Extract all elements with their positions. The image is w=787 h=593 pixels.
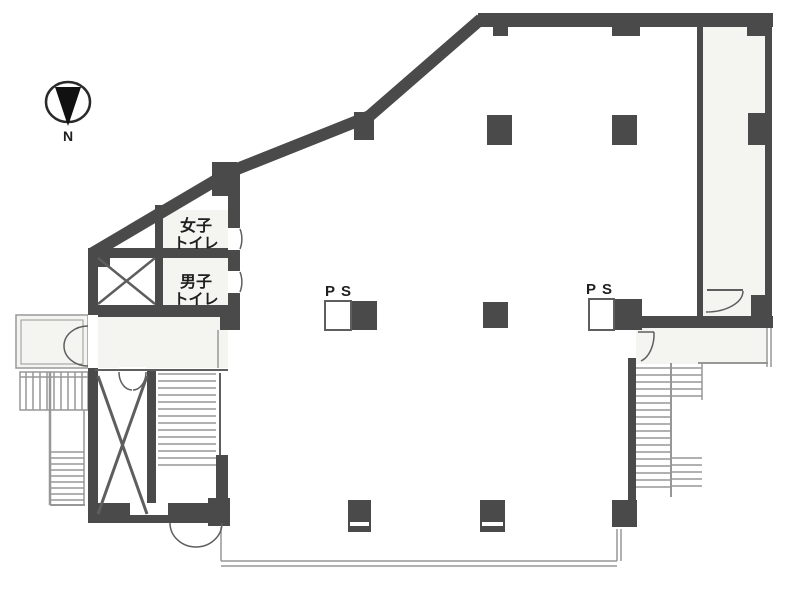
ps-left-white-half xyxy=(325,301,351,330)
stair-hall-corner-column xyxy=(208,498,230,526)
womens-toilet-door-opening xyxy=(228,228,240,250)
ps-right-white-half xyxy=(589,299,614,330)
compass-north-label: N xyxy=(63,128,73,144)
exit-door-leaf-left xyxy=(170,523,196,547)
ps-right-label: PS xyxy=(586,281,618,298)
diagonal-wall-upper xyxy=(366,19,481,119)
right-stair-right-run-treads xyxy=(672,368,702,486)
right-wall-column-upper xyxy=(748,113,772,145)
landing-door-opening xyxy=(88,315,98,368)
right-stair-landing-floor xyxy=(636,328,766,364)
south-wall-notch xyxy=(130,503,168,515)
exterior-landing-floor xyxy=(17,316,87,367)
exterior-stair-lower-treads xyxy=(50,452,84,500)
exit-door-leaf-right xyxy=(196,523,222,547)
diagonal-walls xyxy=(91,19,481,254)
right-stair-left-run-treads xyxy=(636,368,670,487)
hall-column-top-left xyxy=(487,115,512,145)
hall-column-bottom-middle xyxy=(480,500,505,532)
womens-toilet-label-line1: 女子 xyxy=(180,216,212,235)
ps-left-label: PS xyxy=(325,283,357,300)
stair-east-wall-lower xyxy=(216,455,228,505)
womens-toilet-door-swing xyxy=(240,229,242,249)
north-compass: N xyxy=(46,82,90,144)
elevator-shaft-east-wall xyxy=(147,371,156,518)
diagonal-bend-column xyxy=(354,112,374,140)
hall-column-bottom-left xyxy=(348,500,371,532)
right-room-floor xyxy=(703,27,765,316)
diagonal-wall-middle xyxy=(232,116,370,171)
right-stair-west-wall xyxy=(628,358,636,503)
right-room-divider-wall xyxy=(697,27,703,318)
elevator-door-leaf-left xyxy=(119,372,132,390)
mens-toilet-door-opening xyxy=(228,271,240,293)
right-exterior-wall-lower xyxy=(765,145,772,297)
top-exterior-wall xyxy=(478,13,773,27)
toilet-west-partition xyxy=(155,205,163,315)
womens-toilet-label-line2: トイレ xyxy=(173,235,218,252)
column-slit-left xyxy=(350,522,369,526)
elevator-x-brace xyxy=(98,376,147,514)
hall-column-center xyxy=(483,302,508,328)
duct-shaft-x-brace xyxy=(98,258,155,304)
left-exterior-wall-lower xyxy=(88,368,98,523)
right-exterior-wall-upper xyxy=(765,27,772,117)
mens-toilet-door-swing xyxy=(240,272,242,292)
mens-toilet-label-line1: 男子 xyxy=(180,273,212,291)
column-slit-middle xyxy=(482,522,503,526)
floor-plan-page: N 女子 トイレ 男子 トイレ PS PS xyxy=(0,0,787,593)
top-wall-stub-1 xyxy=(493,27,508,36)
ps-left-dark-half xyxy=(351,301,377,330)
floor-plan-drawing: N 女子 トイレ 男子 トイレ PS PS xyxy=(0,0,787,593)
elevator-lobby-floor xyxy=(98,317,228,368)
lobby-corner-stub xyxy=(220,305,240,330)
top-wall-stub-2 xyxy=(612,27,640,36)
right-room-south-wall xyxy=(618,316,773,328)
mens-toilet-label-line2: トイレ xyxy=(173,291,218,308)
interior-stair-treads xyxy=(158,374,216,465)
hall-column-top-right xyxy=(612,115,637,145)
hall-column-bottom-right xyxy=(612,500,637,527)
